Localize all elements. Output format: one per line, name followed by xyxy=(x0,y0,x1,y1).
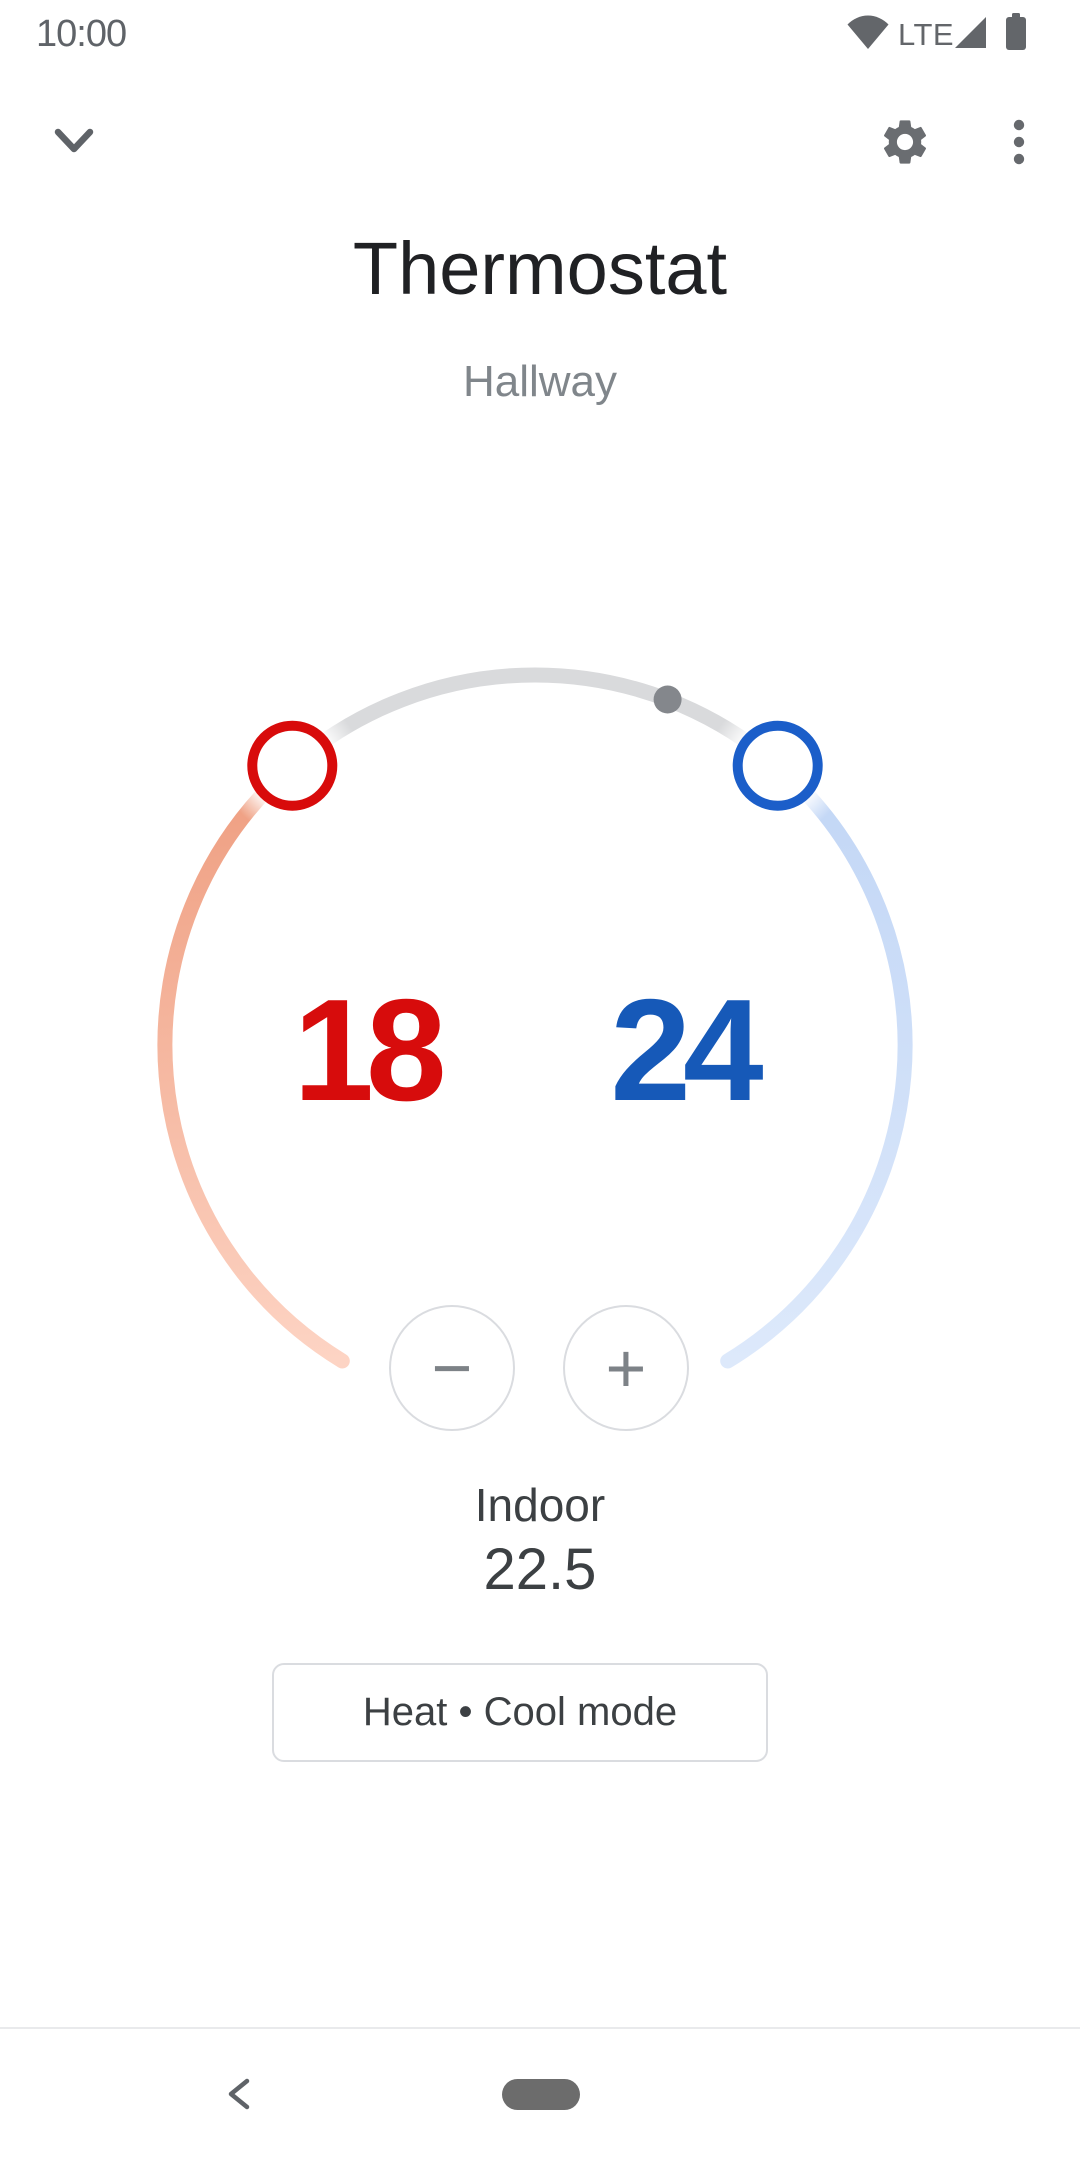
minus-icon: − xyxy=(432,1333,473,1403)
dial-track xyxy=(292,675,777,766)
increase-temperature-button[interactable]: + xyxy=(563,1305,689,1431)
back-chevron-icon xyxy=(218,2072,262,2116)
indoor-temperature-value: 22.5 xyxy=(0,1538,1080,1602)
home-gesture-pill[interactable] xyxy=(502,2079,580,2110)
plus-icon: + xyxy=(606,1333,647,1403)
thermostat-dial xyxy=(0,0,1080,2160)
cool-setpoint-value: 24 xyxy=(543,980,823,1120)
indoor-label: Indoor xyxy=(0,1479,1080,1531)
nav-divider xyxy=(0,2027,1080,2029)
hvac-mode-button[interactable]: Heat • Cool mode xyxy=(272,1663,768,1762)
current-temp-dot xyxy=(654,686,682,714)
back-button[interactable] xyxy=(218,2072,262,2116)
heat-setpoint-value: 18 xyxy=(226,980,506,1120)
cool-setpoint-handle[interactable] xyxy=(738,726,818,806)
decrease-temperature-button[interactable]: − xyxy=(389,1305,515,1431)
thermostat-screen: 10:00 LTE Thermostat Hallway xyxy=(0,0,1080,2160)
heat-setpoint-handle[interactable] xyxy=(252,726,332,806)
hvac-mode-label: Heat • Cool mode xyxy=(363,1690,677,1735)
